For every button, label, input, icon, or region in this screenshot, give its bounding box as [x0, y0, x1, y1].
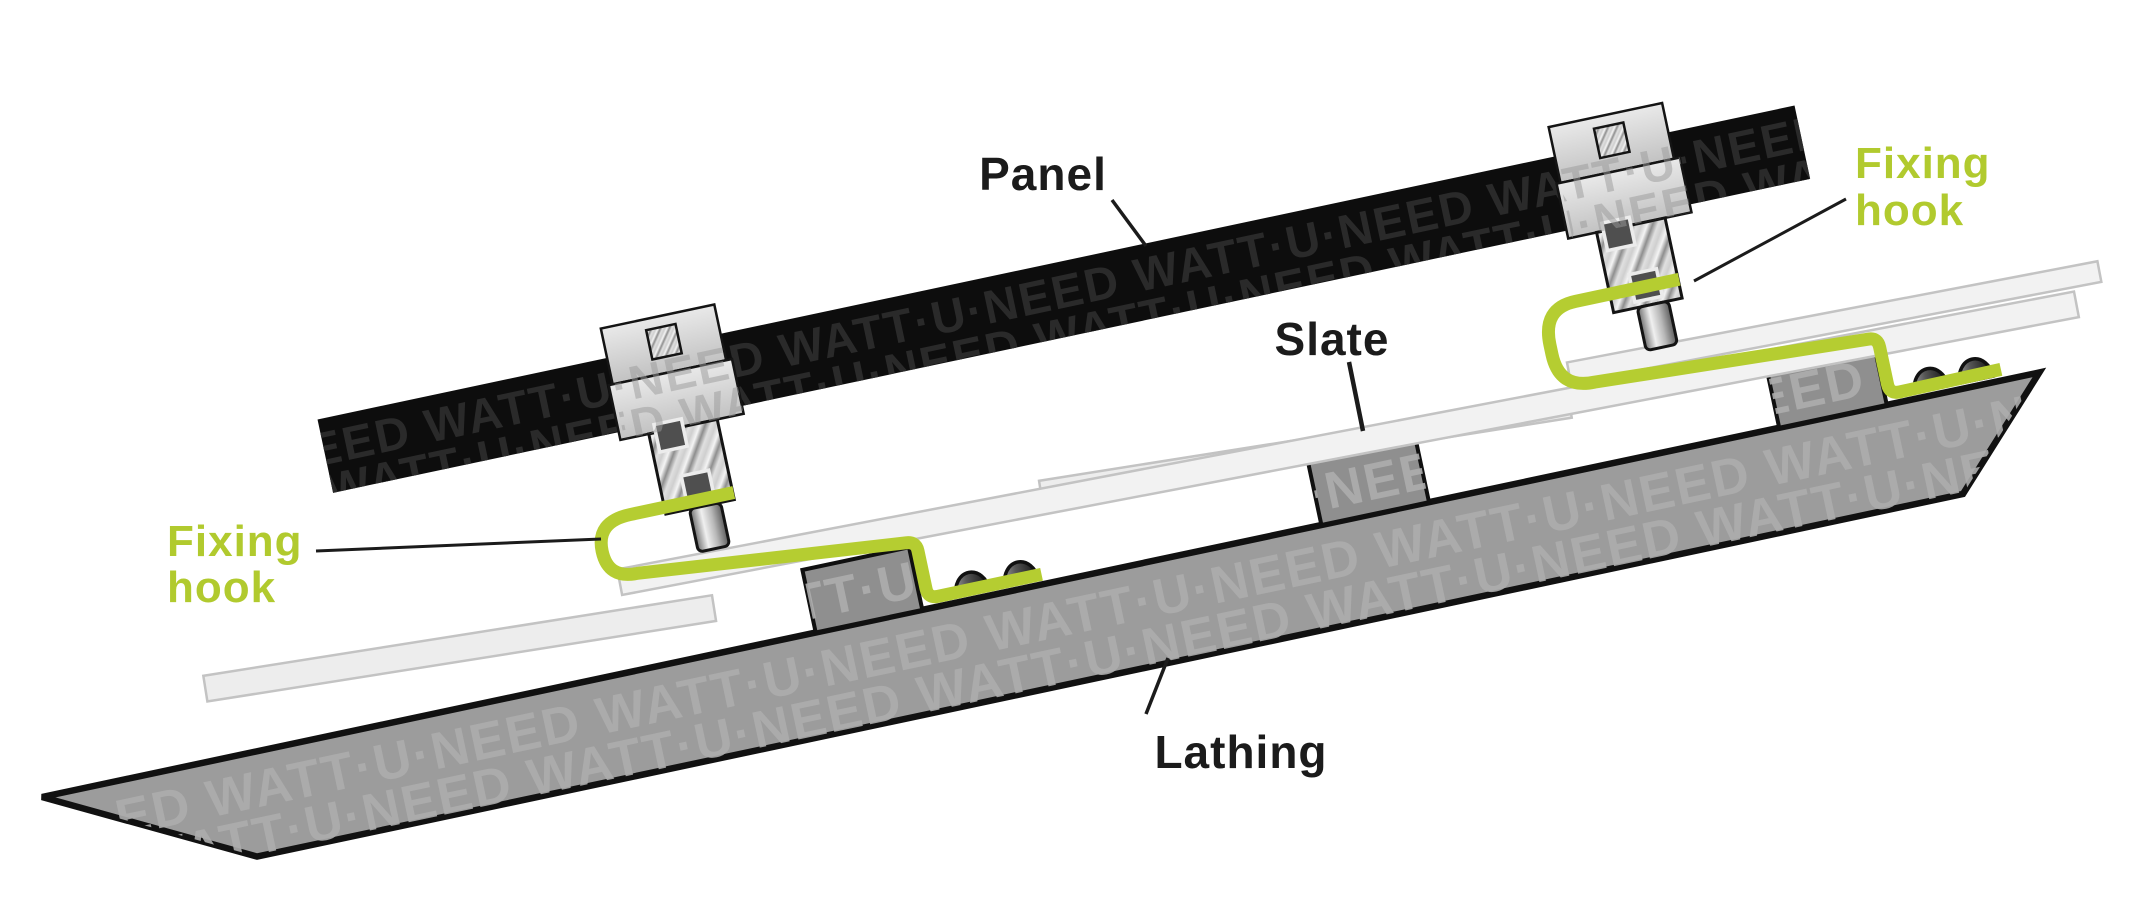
diagram-stage: ED WATT·U·NEED WATT·U·NEED WATT·U·NEED W…: [0, 0, 2154, 921]
roof-assembly: ED WATT·U·NEED WATT·U·NEED WATT·U·NEED W…: [0, 0, 2154, 910]
roof-mounting-diagram: ED WATT·U·NEED WATT·U·NEED WATT·U·NEED W…: [0, 0, 2154, 921]
fixing-hook-right-label-line1: Fixing: [1855, 139, 1991, 188]
panel-leader-line: [1112, 200, 1146, 246]
fixing-hook-left-label: Fixing hook: [167, 517, 303, 612]
panel-label: Panel: [979, 148, 1107, 200]
slate-label: Slate: [1275, 313, 1390, 365]
fixing-hook-left-leader-line: [316, 539, 601, 551]
bolt-nut: [689, 502, 729, 552]
fixing-hook-left-label-line1: Fixing: [167, 517, 303, 566]
fixing-hook-right-leader-line: [1694, 199, 1846, 281]
slate-leader-line: [1349, 362, 1363, 431]
lathing-watermark: ED WATT·U·NEED WATT·U·NEED WATT·U·NEED W…: [18, 117, 2154, 910]
fixing-hook-right-label-line2: hook: [1855, 186, 1964, 235]
bolt-nut: [1637, 301, 1677, 351]
lathing-label: Lathing: [1154, 726, 1327, 778]
fixing-hook-right-label: Fixing hook: [1855, 139, 1991, 235]
fixing-hook-left-label-line2: hook: [167, 563, 276, 612]
